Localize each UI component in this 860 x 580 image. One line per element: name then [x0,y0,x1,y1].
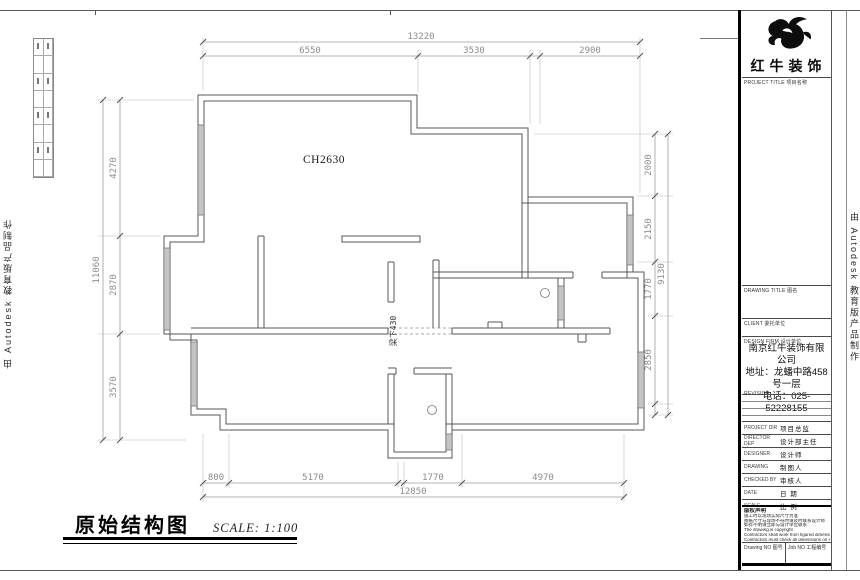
dim-top-seg: 2900 [579,46,601,56]
tb-line [742,415,831,416]
field-cn: 审核人 [780,475,803,485]
dim-bottom-seg: 1770 [422,473,444,483]
dim-bottom-seg: 4970 [532,473,554,483]
dim-extension-lines [98,38,673,502]
company-address: 地址：龙蟠中路458号一层 [744,367,829,391]
field-cn: 项目总监 [780,423,810,433]
field-rows: PROJECT DIR项目总监 DIRECTOR DEP设计部主任 DESIGN… [742,421,831,512]
field-row: DIRECTOR DEP设计部主任 [742,434,831,447]
tb-line [742,336,831,337]
tb-line [742,285,831,286]
field-en: DATE [742,490,780,496]
company-name: 南京红牛装饰有限公司 [744,343,829,367]
field-cn: 设计部主任 [780,436,818,446]
cad-sheet: 由 Autodesk 教育版产品制作 由 Autodesk 教育版产品制作 CH… [0,0,860,580]
dim-top-overall: 13220 [407,32,434,42]
brand-name: 红牛装饰 [742,56,831,76]
drawing-no-cell: Drawing NO 图号 [742,543,786,564]
field-row: DATE日 期 [742,486,831,499]
dim-right-seg: 2850 [644,349,654,371]
dim-ticks [100,39,671,500]
field-en: PROJECT DIR [742,425,780,431]
dim-top-seg: 6550 [299,46,321,56]
dim-left-seg: 4270 [109,157,119,179]
wall-outer-face [164,95,644,458]
drain-symbol [428,406,437,415]
dim-left-overall: 11060 [92,256,102,283]
dim-bottom-seg: 800 [208,473,224,483]
field-row: CHECKED BY审核人 [742,473,831,486]
drawing-title: 原始结构图 [75,509,190,538]
project-title-label: PROJECT TITLE 项目名称 [744,79,807,86]
tb-thick-line [742,505,831,507]
drain-symbol [541,289,550,298]
tb-line [742,318,831,319]
field-en: DIRECTOR DEP [742,435,780,447]
dim-bottom-seg: 5170 [302,473,324,483]
tb-line [742,77,831,78]
dim-lines [103,42,668,497]
floor-plan-canvas: CH2630 梁下430 13220 6550 3530 2900 11060 … [0,0,860,580]
scale-note: SCALE: 1:100 [213,521,298,536]
field-en: CHECKED BY [742,477,780,483]
dim-left-seg: 2870 [109,274,119,296]
tb-line [742,401,831,402]
notes-line: Contractors must check all dimensions on… [744,538,830,541]
dim-right-overall: 9130 [657,263,667,285]
title-block: 红牛装饰 PROJECT TITLE 项目名称 DRAWING TITLE 图名… [742,10,831,563]
window-glazing-lines [164,125,644,450]
title-underline-thin [63,543,297,544]
disclaimer-notes: 版权声明 施工时以现场实际尺寸为准 图纸尺寸与现场不符时请及时联系设计师 如有不… [744,508,830,541]
drawing-title-label: DRAWING TITLE 图名 [744,287,797,294]
client-label: CLIENT 委托单位 [744,320,785,327]
interior-walls [191,197,638,430]
tb-line [742,408,831,409]
number-cells: Drawing NO 图号 Job NO 工程编号 [742,542,831,564]
dim-bottom-overall: 12850 [399,487,426,497]
field-en: DESIGNER [742,451,780,457]
company-info: 南京红牛装饰有限公司 地址：龙蟠中路458号一层 电话：025-52228155 [744,343,829,415]
field-row: PROJECT DIR项目总监 [742,421,831,434]
dim-right-seg: 1770 [644,278,654,300]
job-no-cell: Job NO 工程编号 [786,543,831,564]
dim-top-seg: 3530 [463,46,485,56]
field-en: DRAWING [742,464,780,470]
tb-bottom-thick-line [742,563,831,566]
dimension-labels: 13220 6550 3530 2900 11060 4270 2870 357… [92,32,667,497]
field-cn: 设计师 [780,449,803,459]
title-underline-thick [63,537,297,540]
wall-inner-face [170,101,638,452]
field-row: DESIGNER设计师 [742,447,831,460]
field-cn: 制图人 [780,462,803,472]
dim-right-seg: 2000 [644,154,654,176]
tb-line [742,394,831,395]
dim-left-seg: 3570 [109,376,119,398]
bull-logo [758,14,814,54]
ceiling-height-label: CH2630 [303,154,345,166]
beam-note-label: 梁下430 [389,316,398,347]
field-row: DRAWING制图人 [742,460,831,473]
field-cn: 日 期 [780,488,798,498]
dim-right-seg: 2150 [644,218,654,240]
